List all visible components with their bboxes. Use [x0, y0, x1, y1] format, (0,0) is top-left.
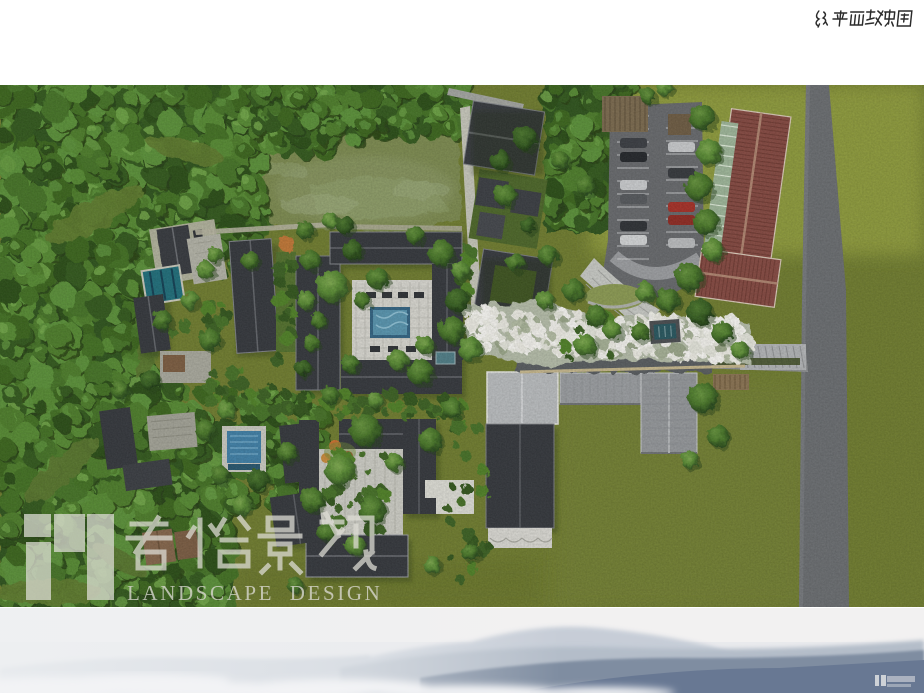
svg-text:LANDSCAPE DESIGN: LANDSCAPE DESIGN	[127, 581, 382, 605]
